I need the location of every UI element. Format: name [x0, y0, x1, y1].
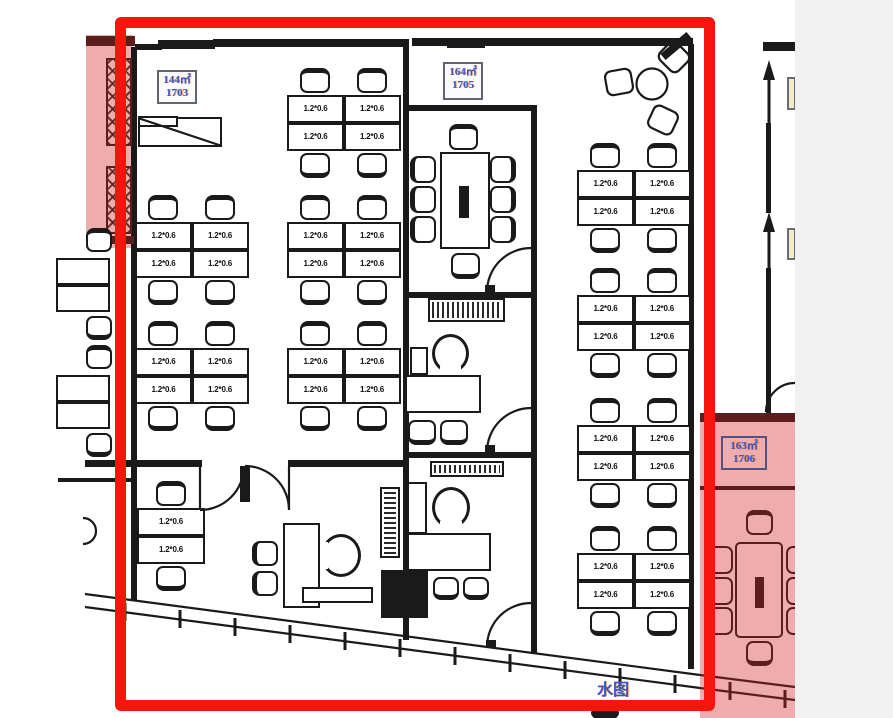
- room-area: 163㎡: [724, 440, 764, 453]
- floor-plan-canvas: 144㎡ 1703 164㎡ 1705 163㎡ 1706 1.2*0.61.2…: [0, 0, 893, 718]
- room-number: 1706: [724, 453, 764, 466]
- selection-rectangle: [115, 17, 715, 711]
- room-label-1706[interactable]: 163㎡ 1706: [721, 436, 767, 470]
- side-background-panel: [795, 0, 893, 718]
